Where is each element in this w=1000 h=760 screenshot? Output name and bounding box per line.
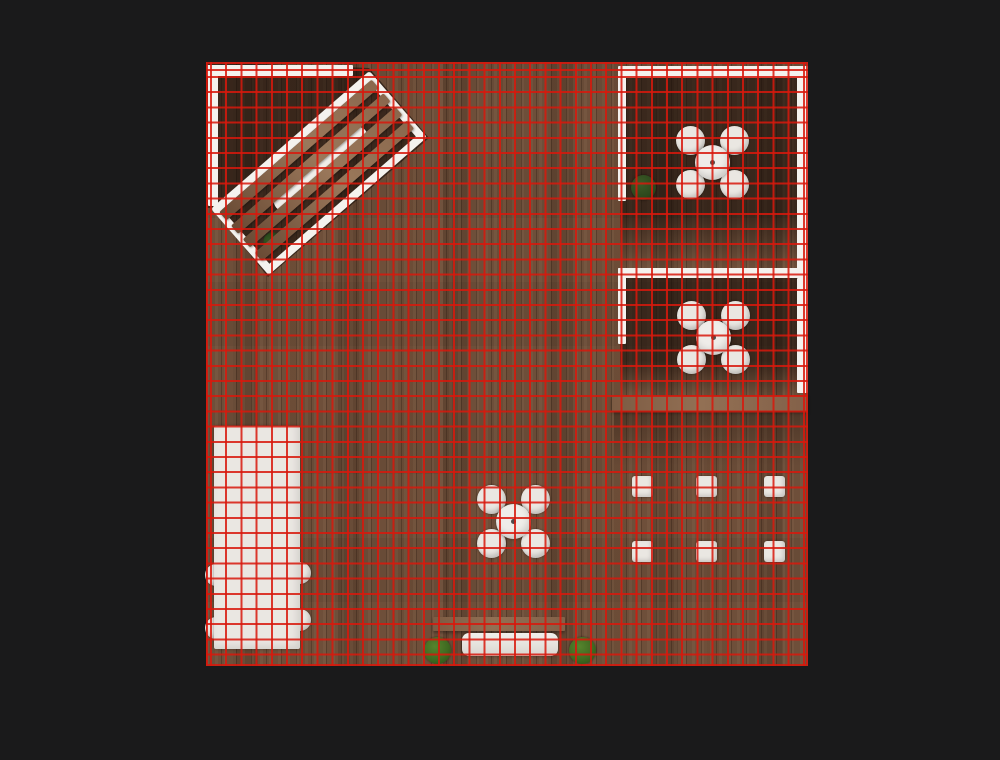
counter-table: [214, 426, 300, 649]
wall-right-upper: [797, 66, 808, 271]
wall-mid-right-room-top: [618, 268, 808, 278]
square-stool-6: [764, 541, 785, 562]
wall-right-lower: [797, 278, 808, 393]
bench-back-bar: [433, 617, 565, 631]
square-stool-1: [632, 476, 653, 497]
dining-set-center-table-dot: [511, 519, 516, 524]
square-stool-5: [696, 541, 717, 562]
wall-top-right-horizontal: [620, 66, 808, 78]
bush-bench-right: [569, 637, 596, 664]
bench-seat: [462, 633, 558, 656]
wall-left-vertical: [208, 65, 218, 206]
square-stool-3: [764, 476, 785, 497]
room-floor[interactable]: [206, 62, 808, 666]
dining-set-mid-right-table-dot: [711, 335, 716, 340]
wood-beam-divider: [612, 396, 808, 411]
dining-set-top-right-table-dot: [710, 160, 715, 165]
potted-plant-top-right-room: [631, 175, 656, 200]
bush-bench-left: [424, 637, 451, 664]
wall-top-right-room-left: [618, 66, 626, 201]
below-beam-shadow: [614, 411, 808, 466]
square-stool-4: [632, 541, 653, 562]
square-stool-2: [696, 476, 717, 497]
pergola-slatted-structure: [211, 71, 427, 275]
wall-top-left-horizontal: [206, 65, 353, 76]
wall-mid-right-room-left: [618, 268, 626, 344]
simulator-viewport[interactable]: [0, 0, 1000, 760]
